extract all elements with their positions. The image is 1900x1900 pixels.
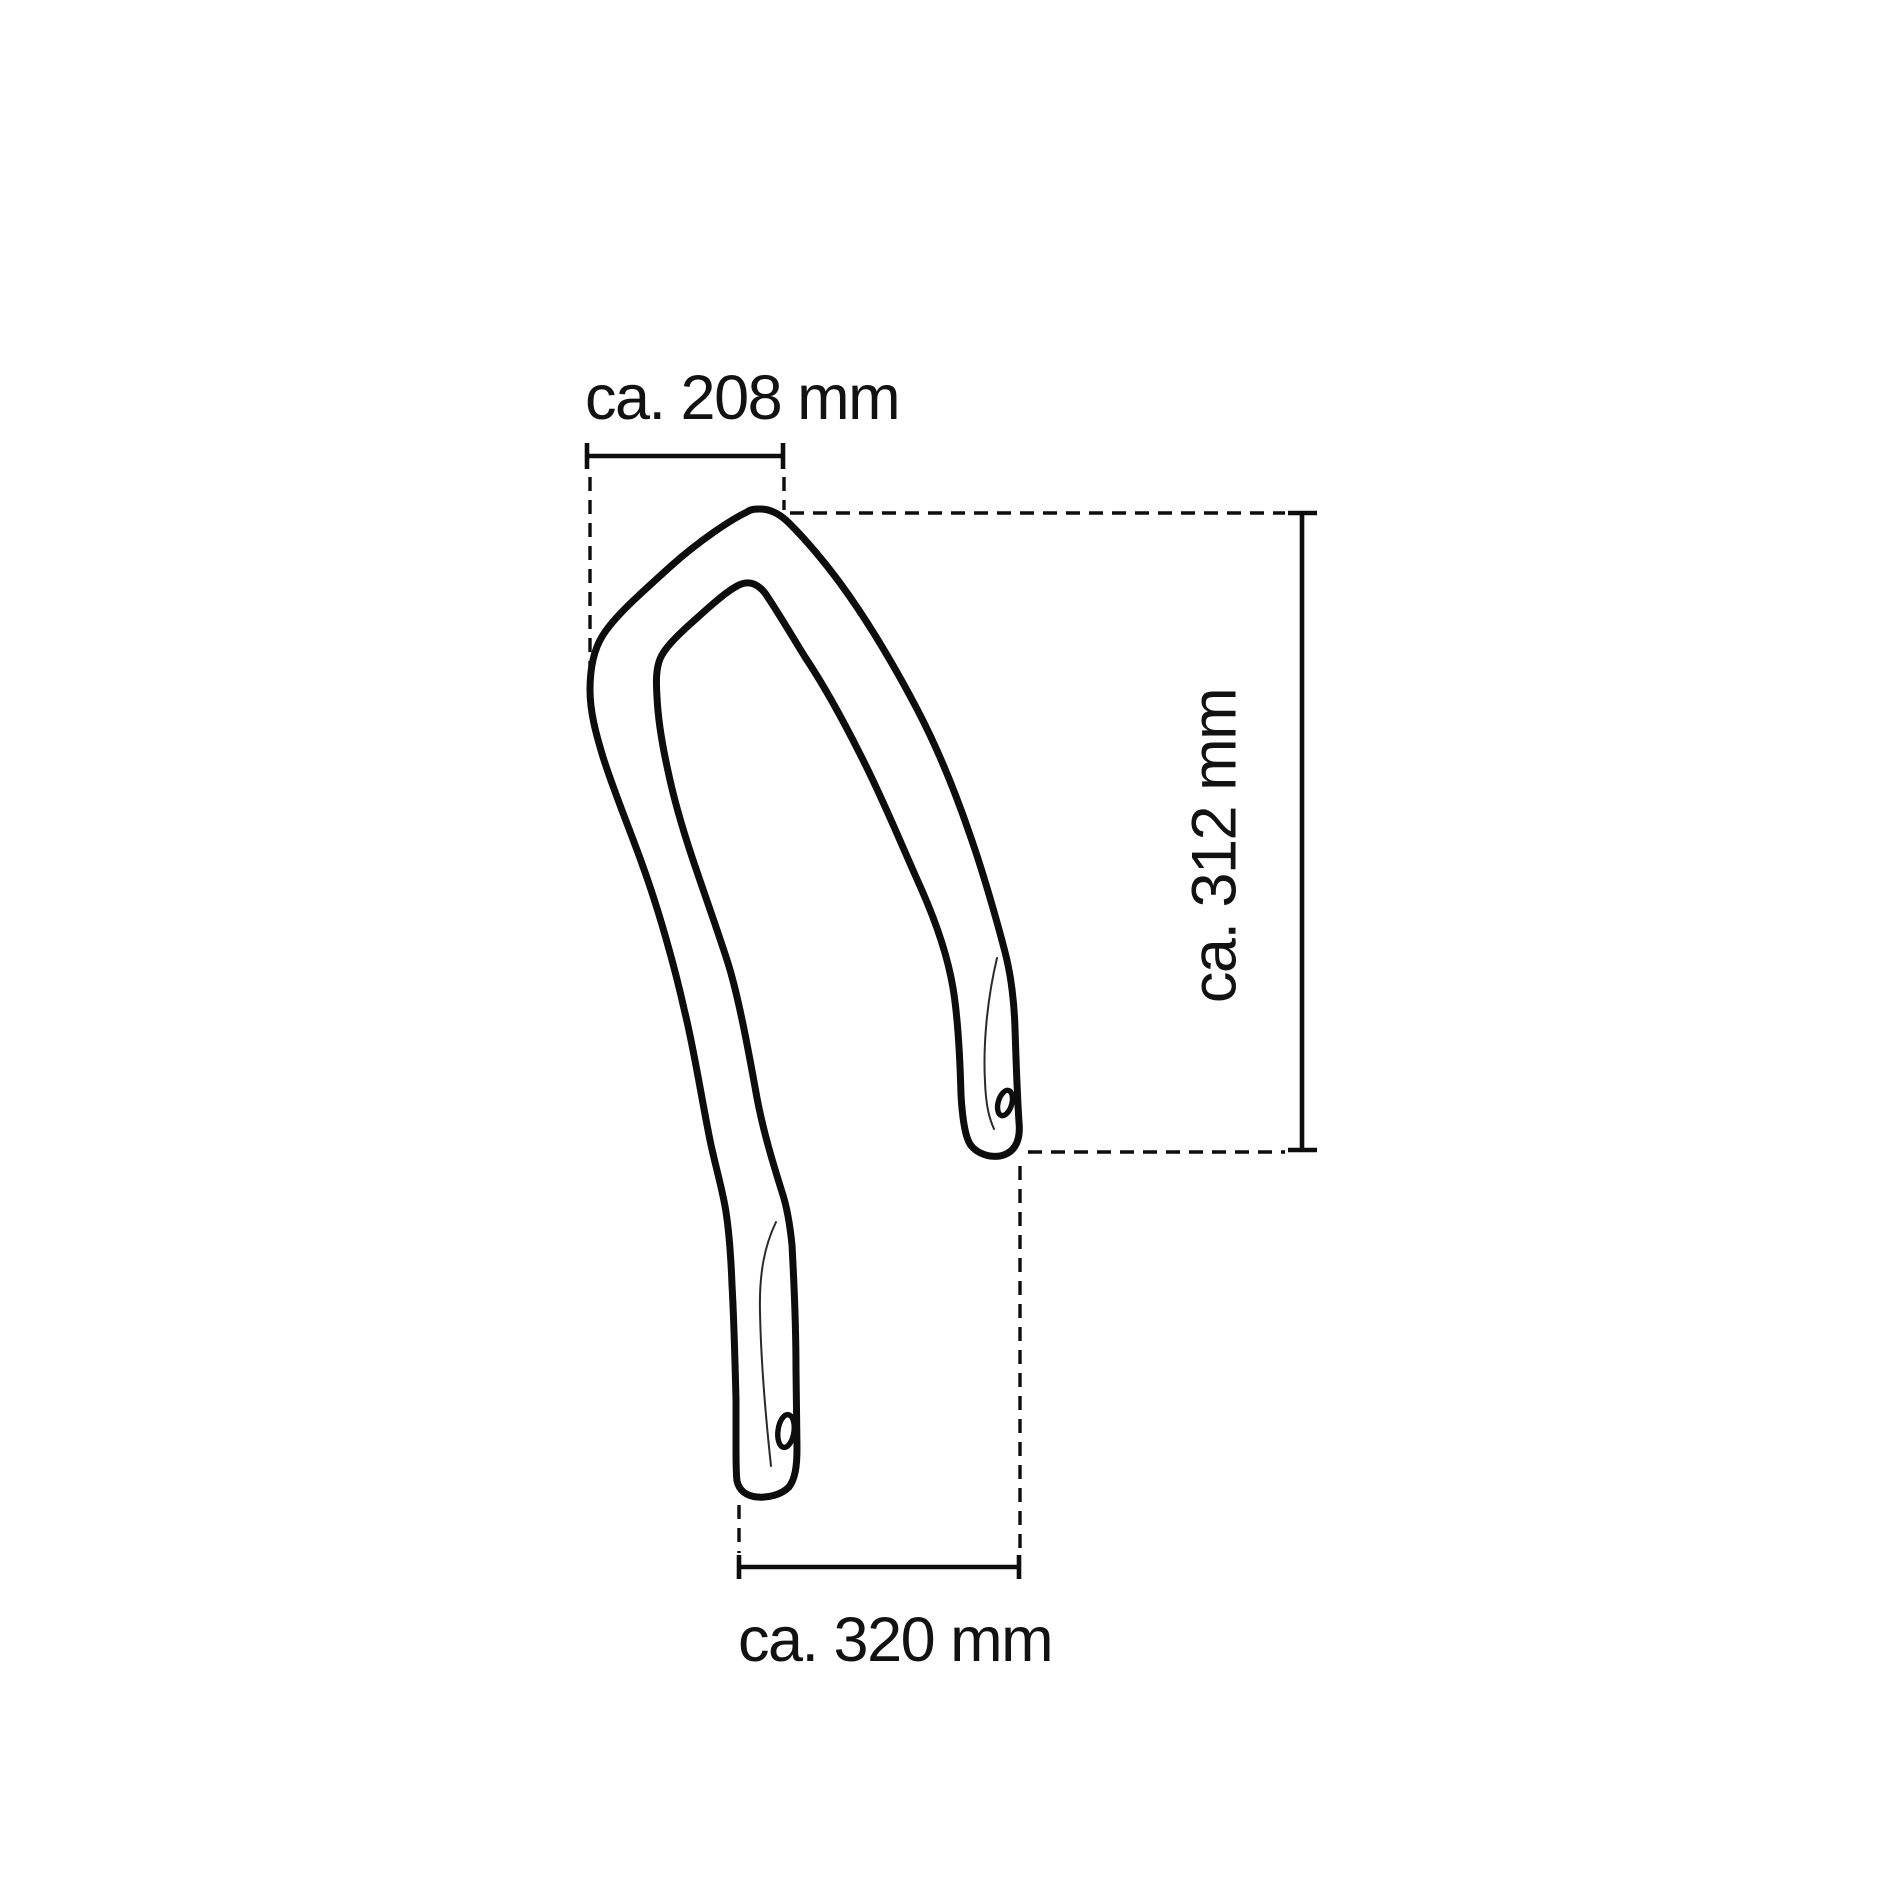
part-silhouette (590, 509, 1019, 1497)
dimension-label-top-width: ca. 208 mm (585, 367, 899, 430)
dimension-line-top-width (587, 443, 783, 469)
technical-drawing-page: ca. 208 mm ca. 312 mm ca. 320 mm (0, 0, 1900, 1900)
dimension-label-bottom-width: ca. 320 mm (738, 1609, 1052, 1672)
dimension-label-right-height: ca. 312 mm (1184, 689, 1247, 1003)
mounting-hole-left (776, 1414, 796, 1449)
dimension-line-right-height (1288, 513, 1317, 1150)
dimension-line-bottom-width (739, 1555, 1019, 1579)
